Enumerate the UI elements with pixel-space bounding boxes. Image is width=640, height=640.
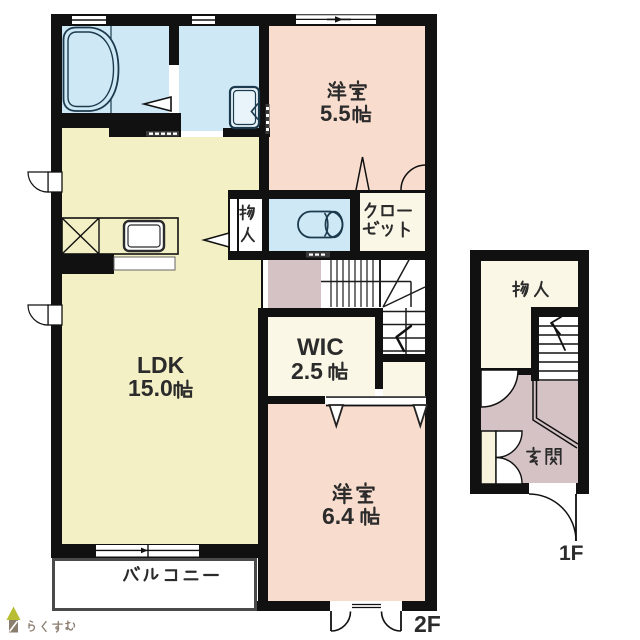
svg-text:1F: 1F (559, 542, 584, 565)
svg-text:WIC: WIC (297, 334, 344, 361)
svg-text:2F: 2F (414, 611, 441, 637)
svg-text:15.0: 15.0 (128, 375, 173, 401)
svg-text:5.5: 5.5 (320, 101, 351, 126)
svg-text:2.5: 2.5 (291, 358, 323, 384)
svg-text:6.4: 6.4 (322, 503, 354, 529)
